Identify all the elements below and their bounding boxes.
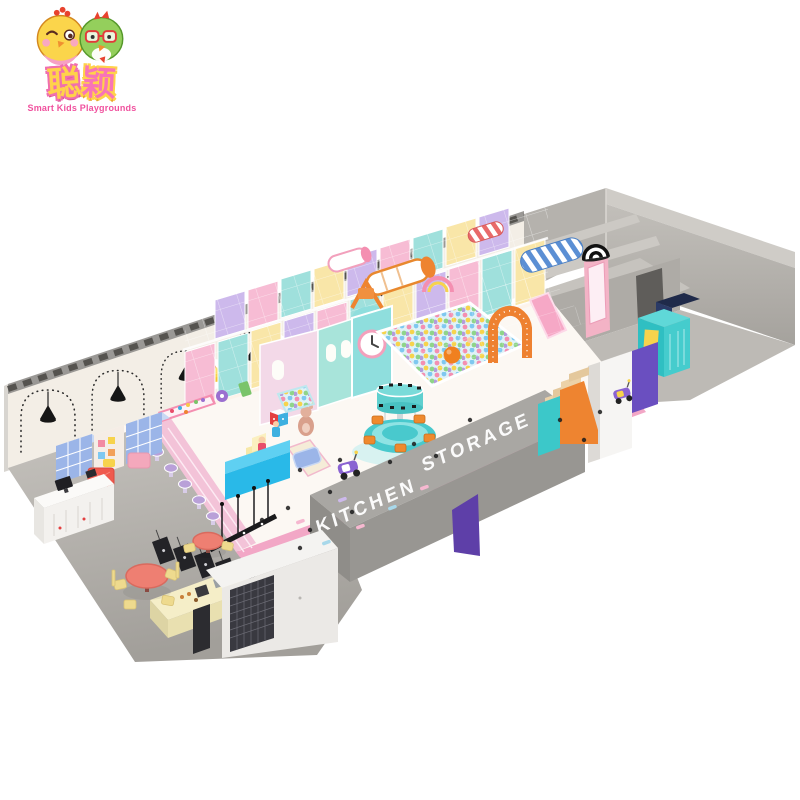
fridge [193,604,210,654]
playground-render: KITCHEN STORAGE [0,0,800,800]
logo-char-1: 聪 [46,67,83,102]
white-cabinet [588,351,632,463]
kid-figure [272,421,280,437]
green-bird-mascot-icon [80,11,123,63]
pink-ottoman [128,453,150,468]
carousel-canopy [377,383,423,414]
yellow-ottoman [103,459,115,467]
mascots-icon [30,4,134,68]
logo-tagline: Smart Kids Playgrounds [18,103,146,113]
playhouse-window [326,344,336,362]
playhouse-window [272,360,284,380]
yellow-chick-mascot-icon [37,7,84,65]
logo-char-2: 颖 [81,67,118,101]
donut-hole [220,394,224,398]
product-image: 聪颖 Smart Kids Playgrounds [0,0,800,800]
playhouse-window [341,340,351,358]
purple-panel [632,342,658,413]
brand-logo: 聪颖 Smart Kids Playgrounds [18,4,146,113]
logo-chinese-text: 聪颖 [18,68,146,100]
teal-panel [538,396,560,456]
